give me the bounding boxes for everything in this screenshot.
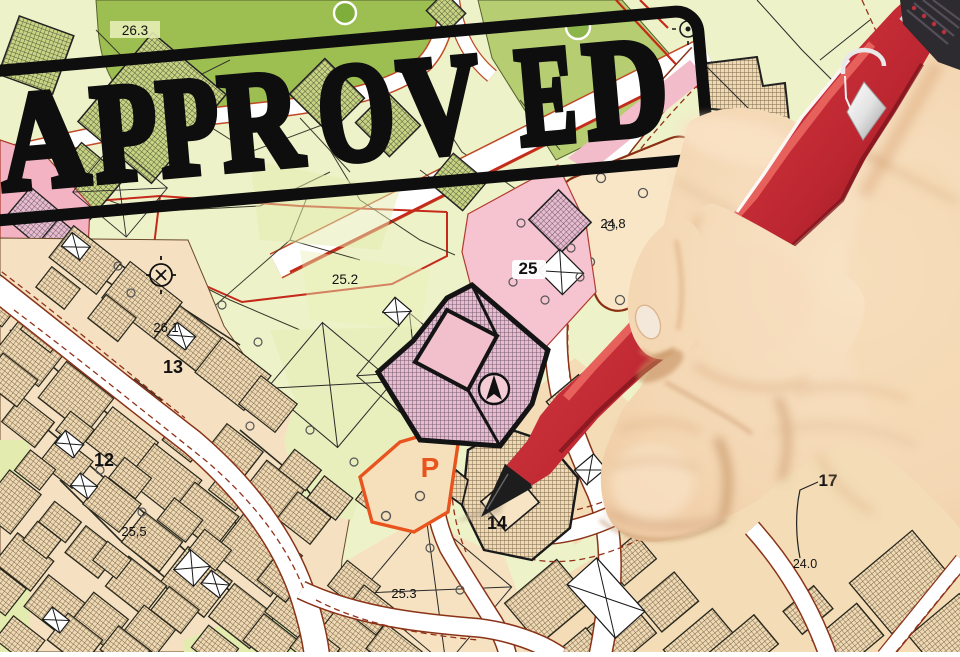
svg-text:25.2: 25.2 bbox=[332, 272, 358, 287]
svg-text:P: P bbox=[421, 452, 440, 483]
svg-text:12: 12 bbox=[94, 450, 114, 470]
svg-text:25,5: 25,5 bbox=[121, 524, 146, 539]
svg-text:24.0: 24.0 bbox=[793, 557, 817, 571]
svg-text:24,8: 24,8 bbox=[600, 216, 625, 231]
svg-text:A: A bbox=[0, 59, 94, 221]
svg-text:13: 13 bbox=[163, 357, 183, 377]
svg-text:P: P bbox=[86, 53, 163, 213]
svg-text:14: 14 bbox=[487, 513, 507, 533]
svg-text:R: R bbox=[214, 40, 309, 202]
svg-text:25: 25 bbox=[519, 259, 538, 278]
svg-text:D: D bbox=[578, 8, 673, 170]
svg-text:V: V bbox=[393, 24, 486, 185]
svg-text:25.3: 25.3 bbox=[391, 586, 416, 601]
svg-text:26.3: 26.3 bbox=[122, 23, 148, 38]
svg-text:26,1: 26,1 bbox=[153, 320, 178, 335]
svg-text:O: O bbox=[311, 32, 400, 193]
